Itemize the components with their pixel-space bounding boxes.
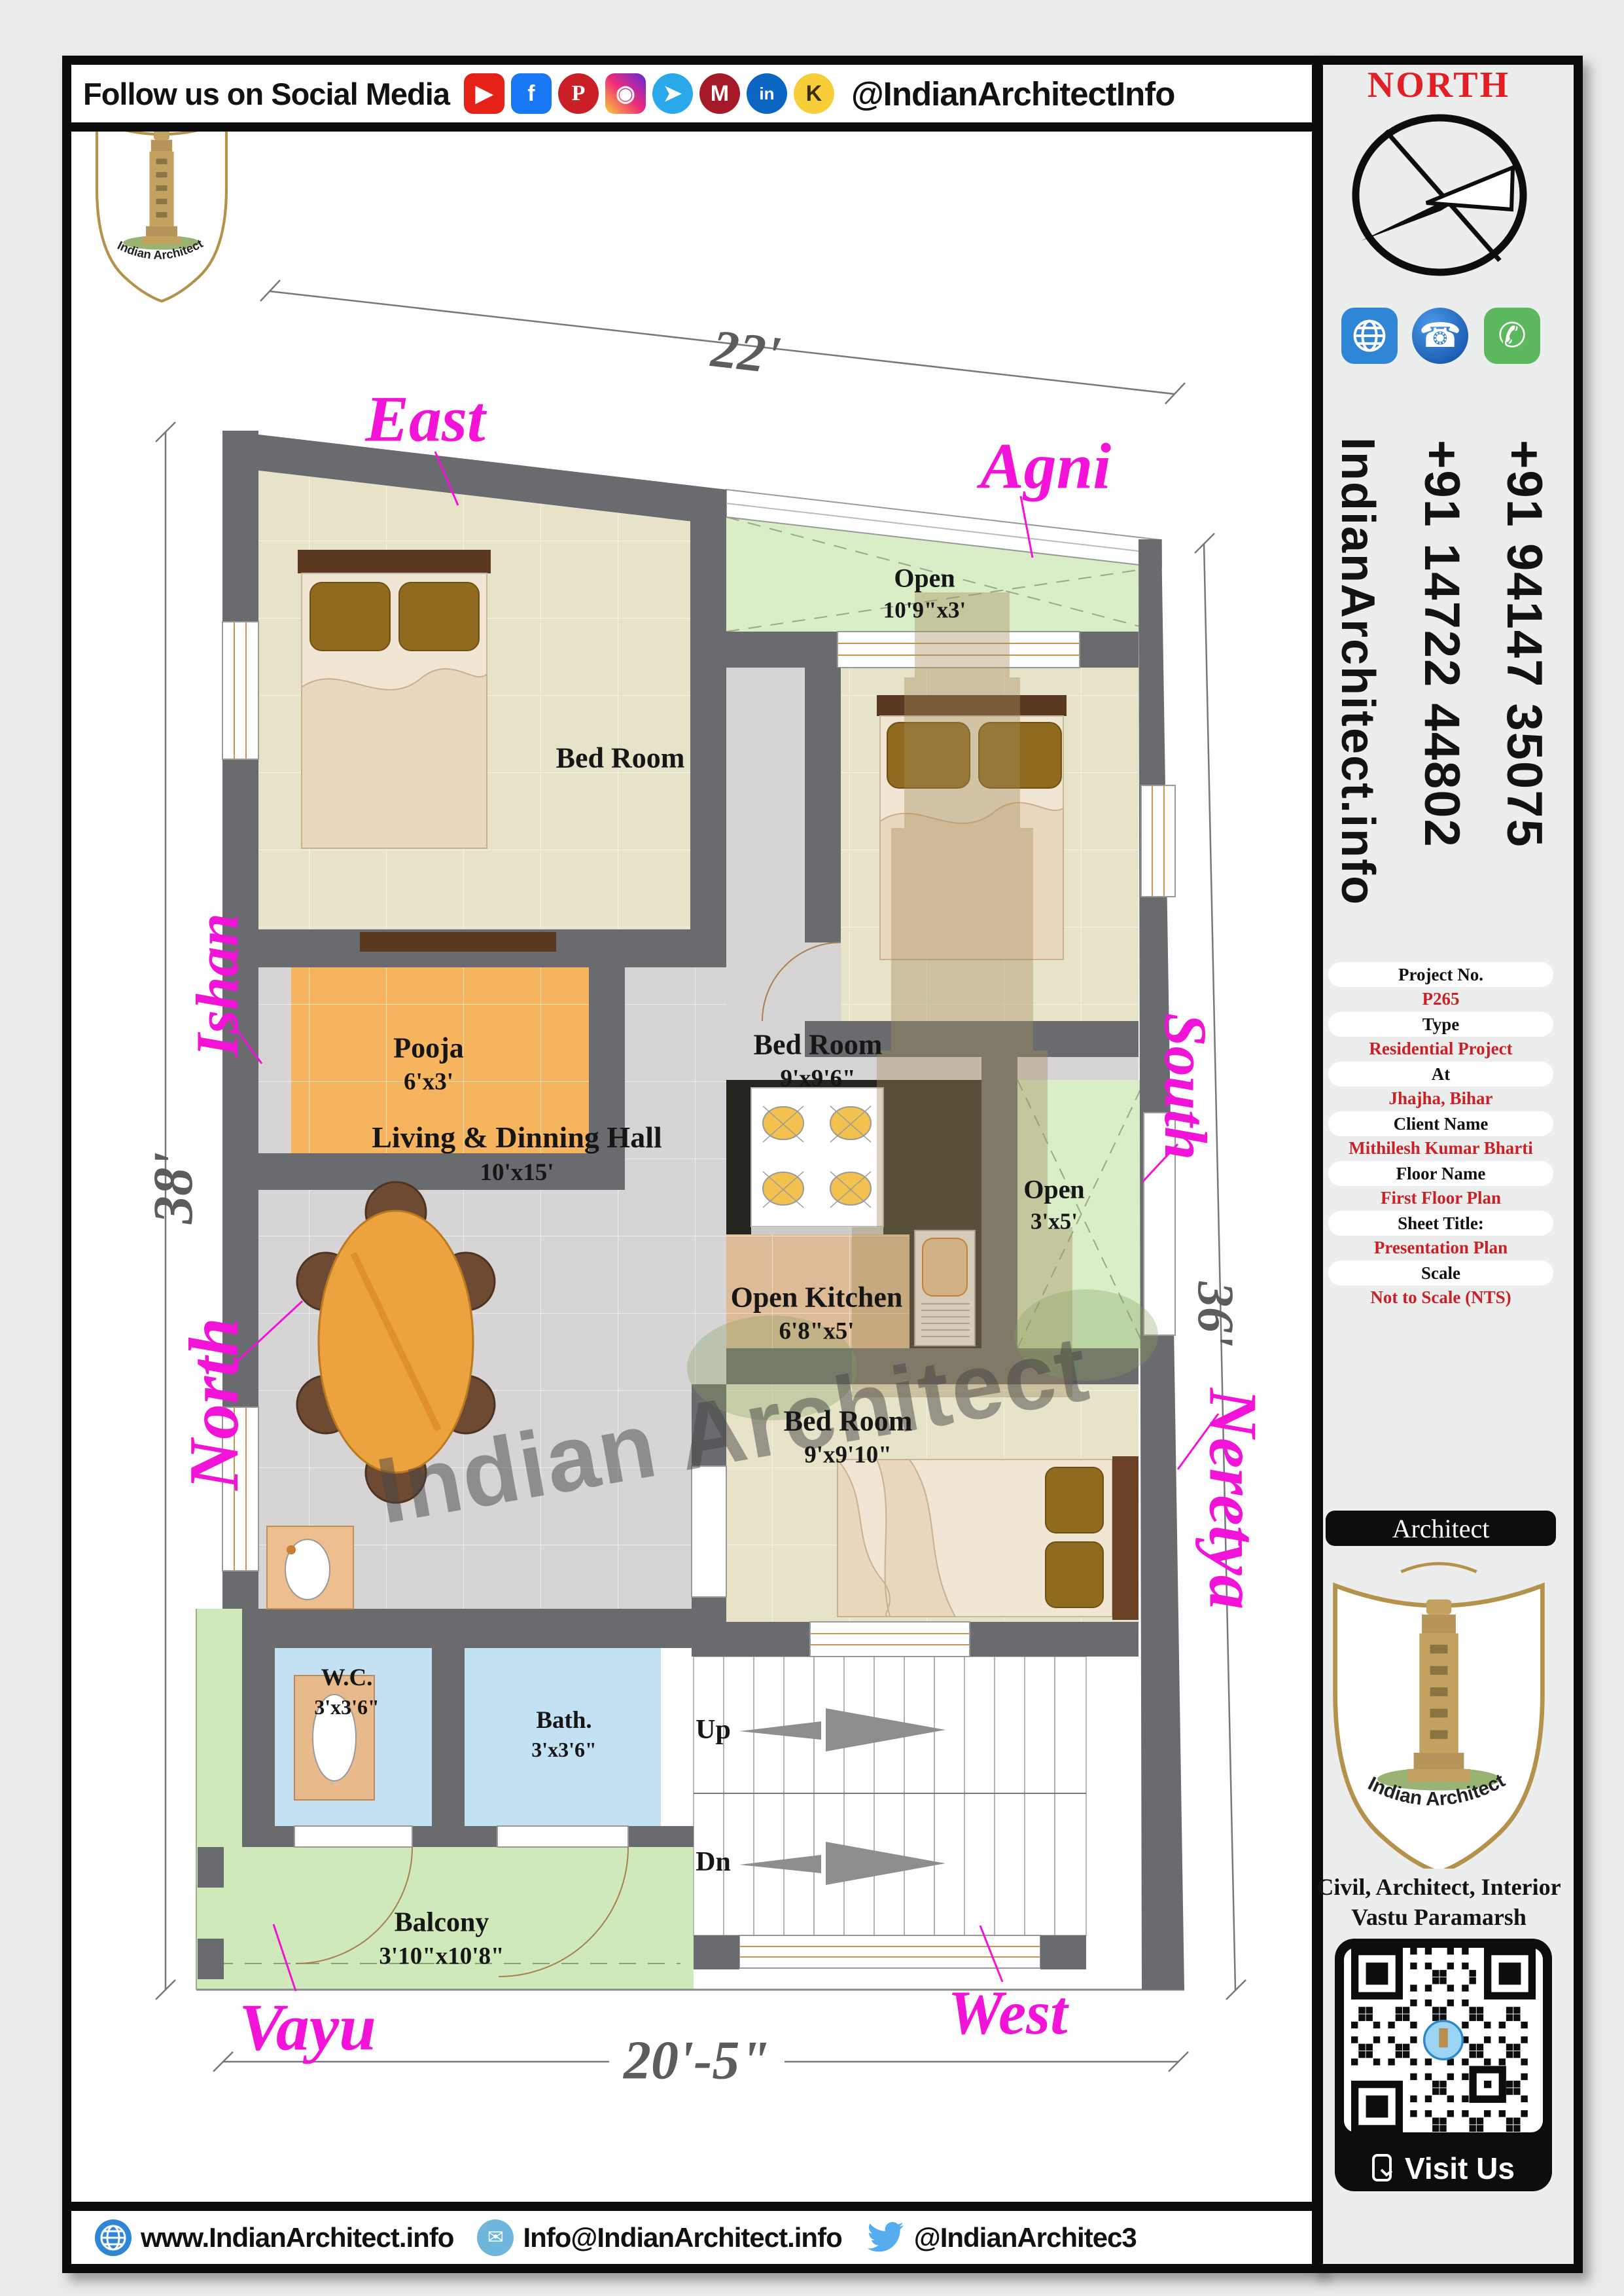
sheet-logo bbox=[97, 108, 226, 301]
direction-north: North bbox=[174, 1318, 255, 1490]
north-title: NORTH bbox=[1368, 64, 1510, 106]
dimension-top: 22' bbox=[709, 317, 784, 386]
sidebar-website-icon[interactable] bbox=[1341, 308, 1398, 364]
info-label-project-no: Project No. bbox=[1328, 962, 1553, 987]
floor-plan-drawing: Indian Architect bbox=[62, 56, 1312, 2209]
info-value-project-no: P265 bbox=[1328, 987, 1553, 1011]
direction-south: South bbox=[1151, 1013, 1220, 1160]
footer-twitter[interactable]: @IndianArchitec3 bbox=[866, 2221, 1137, 2255]
globe-icon bbox=[95, 2219, 132, 2256]
room-label-pooja: Pooja 6'x3' bbox=[393, 1029, 464, 1098]
direction-vayu: Vayu bbox=[239, 1990, 376, 2066]
info-value-scale: Not to Scale (NTS) bbox=[1328, 1285, 1553, 1309]
room-label-kitchen: Open Kitchen 6'8"x5' bbox=[731, 1278, 903, 1347]
qr-code bbox=[1344, 1948, 1543, 2132]
qr-code-block[interactable]: Visit Us bbox=[1335, 1939, 1552, 2191]
info-value-type: Residential Project bbox=[1328, 1037, 1553, 1060]
room-label-wc: W.C. 3'x3'6" bbox=[314, 1662, 380, 1721]
info-label-at: At bbox=[1328, 1062, 1553, 1086]
direction-east: East bbox=[365, 382, 485, 457]
stairs-dn-label: Dn bbox=[696, 1846, 731, 1878]
services-line-2: Vastu Paramarsh bbox=[1351, 1903, 1527, 1931]
stairs-up-label: Up bbox=[696, 1714, 731, 1746]
visit-us-row[interactable]: Visit Us bbox=[1335, 2151, 1552, 2186]
info-value-sheet: Presentation Plan bbox=[1328, 1236, 1553, 1259]
direction-ishan: Ishan bbox=[183, 913, 252, 1057]
telegram-icon[interactable]: ➤ bbox=[652, 73, 693, 114]
room-label-bedroom2: Bed Room 9'x9'6" bbox=[754, 1026, 883, 1094]
phone-number-1: +91 94147 35075 bbox=[1496, 440, 1553, 848]
dimension-right: 36' bbox=[1186, 1282, 1245, 1347]
sidebar-call-icon[interactable]: ✆ bbox=[1484, 308, 1540, 364]
services-line-1: Civil, Architect, Interior bbox=[1316, 1873, 1561, 1901]
info-label-sheet: Sheet Title: bbox=[1328, 1211, 1553, 1236]
room-label-open-top: Open 10'9"x3' bbox=[883, 561, 966, 625]
direction-west: West bbox=[948, 1977, 1068, 2049]
info-value-floor: First Floor Plan bbox=[1328, 1186, 1553, 1210]
website-vertical-text: IndianArchitect.info bbox=[1331, 437, 1385, 906]
info-label-scale: Scale bbox=[1328, 1261, 1553, 1285]
info-label-floor: Floor Name bbox=[1328, 1161, 1553, 1186]
social-handle: @IndianArchitectInfo bbox=[851, 75, 1174, 113]
youtube-icon[interactable]: ▶ bbox=[464, 73, 504, 114]
phone-number-2: +91 14722 44802 bbox=[1413, 440, 1470, 848]
moj-icon[interactable]: M bbox=[699, 73, 740, 114]
instagram-icon[interactable]: ◉ bbox=[605, 73, 646, 114]
mobile-icon bbox=[1372, 2154, 1394, 2183]
room-label-bedroom3: Bed Room 9'x9'10" bbox=[784, 1402, 913, 1471]
room-label-balcony: Balcony 3'10"x10'8" bbox=[379, 1905, 504, 1973]
visit-us-label: Visit Us bbox=[1405, 2151, 1515, 2186]
dimension-left: 38' bbox=[140, 1152, 205, 1224]
info-label-client: Client Name bbox=[1328, 1111, 1553, 1136]
info-value-at: Jhajha, Bihar bbox=[1328, 1086, 1553, 1110]
contact-footer-bar: www.IndianArchitect.info ✉ Info@IndianAr… bbox=[62, 2202, 1321, 2273]
pinterest-icon[interactable]: P bbox=[558, 73, 599, 114]
direction-agni: Agni bbox=[980, 429, 1111, 504]
info-value-client: Mithilesh Kumar Bharti bbox=[1328, 1136, 1553, 1160]
linkedin-icon[interactable]: in bbox=[747, 73, 787, 114]
north-compass-icon bbox=[1348, 111, 1531, 281]
architect-bar: Architect bbox=[1326, 1511, 1556, 1546]
direction-neretya: Neretya bbox=[1194, 1388, 1273, 1609]
info-label-type: Type bbox=[1328, 1012, 1553, 1037]
email-icon: ✉ bbox=[477, 2219, 514, 2256]
social-icons-row: ▶ f P ◉ ➤ M in K bbox=[464, 73, 834, 114]
twitter-icon bbox=[866, 2221, 905, 2255]
social-header-bar: Follow us on Social Media ▶ f P ◉ ➤ M in… bbox=[62, 56, 1321, 132]
footer-website[interactable]: www.IndianArchitect.info bbox=[95, 2219, 453, 2256]
room-label-living: Living & Dinning Hall 10'x15' bbox=[372, 1118, 662, 1189]
room-label-bath: Bath. 3'x3'6" bbox=[531, 1705, 597, 1764]
page: Indian Architect bbox=[0, 0, 1624, 2296]
room-label-bedroom1: Bed Room bbox=[556, 739, 685, 776]
room-label-open-right: Open 3'x5' bbox=[1023, 1172, 1084, 1236]
footer-email[interactable]: ✉ Info@IndianArchitect.info bbox=[477, 2219, 841, 2256]
sidebar-phone-icon[interactable]: ☎ bbox=[1412, 308, 1468, 364]
social-header-title: Follow us on Social Media bbox=[83, 76, 450, 112]
architect-shield-logo bbox=[1324, 1554, 1553, 1869]
koo-icon[interactable]: K bbox=[794, 73, 834, 114]
facebook-icon[interactable]: f bbox=[511, 73, 552, 114]
dimension-bottom: 20'-5" bbox=[609, 2029, 785, 2092]
